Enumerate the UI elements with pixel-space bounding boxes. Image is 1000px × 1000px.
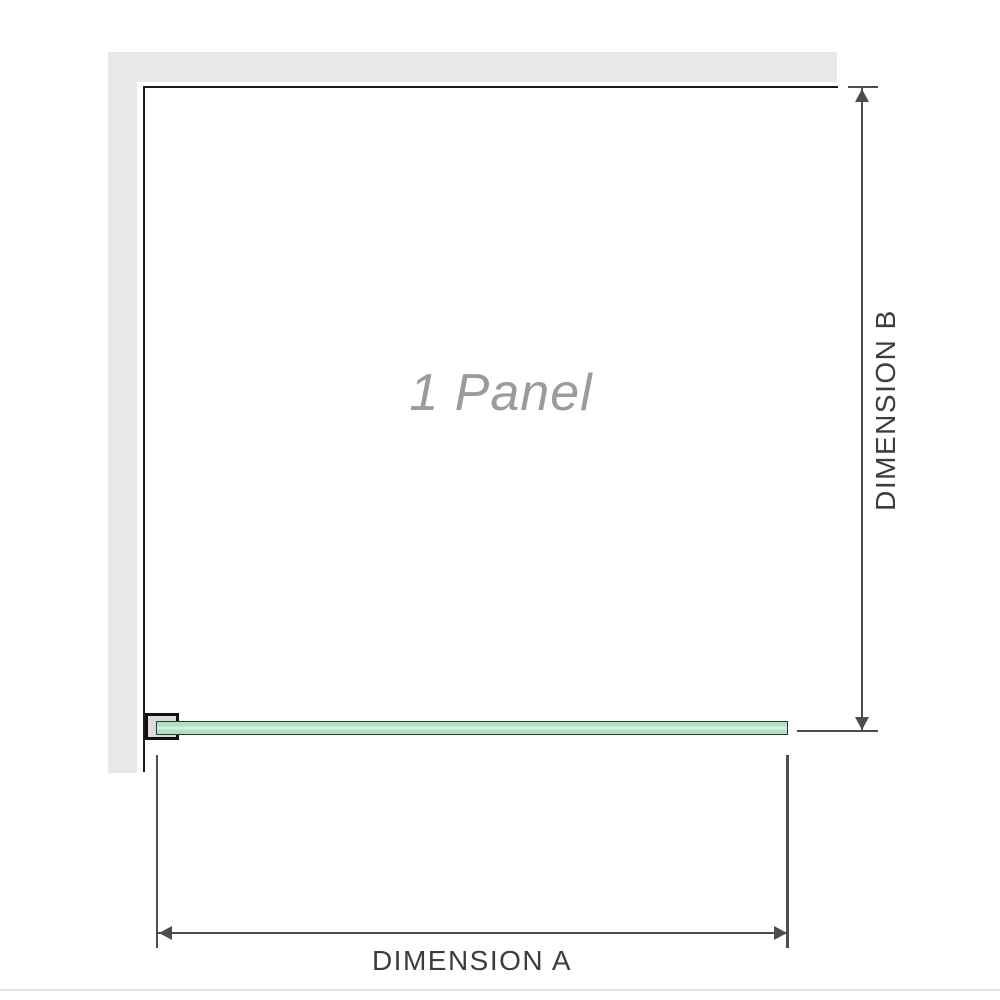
opening-left-edge-line	[143, 86, 146, 772]
dimension-b-label: DIMENSION B	[870, 309, 902, 511]
glass-panel	[156, 721, 788, 735]
wall-left-bar	[108, 52, 137, 773]
wall-top-bar	[108, 52, 837, 82]
dimension-a-arrowhead-left	[159, 926, 172, 940]
dimension-a-label: DIMENSION A	[372, 945, 572, 977]
panel-dimension-diagram: 1 Panel DIMENSION B DIMENSION A	[0, 0, 1000, 1000]
dimension-b-line	[861, 88, 864, 730]
dimension-a-line	[158, 932, 788, 935]
panel-count-label: 1 Panel	[351, 363, 651, 423]
artwork-baseline	[0, 989, 1000, 991]
dimension-b-top-cap	[848, 86, 878, 89]
dimension-b-arrowhead-down	[855, 717, 869, 730]
dimension-a-extension-left	[156, 755, 159, 948]
opening-top-edge-line	[143, 86, 838, 89]
dimension-b-arrowhead-up	[855, 89, 869, 102]
dimension-b-bottom-cap	[797, 730, 878, 733]
dimension-a-extension-right	[786, 755, 789, 948]
dimension-a-arrowhead-right	[774, 926, 787, 940]
